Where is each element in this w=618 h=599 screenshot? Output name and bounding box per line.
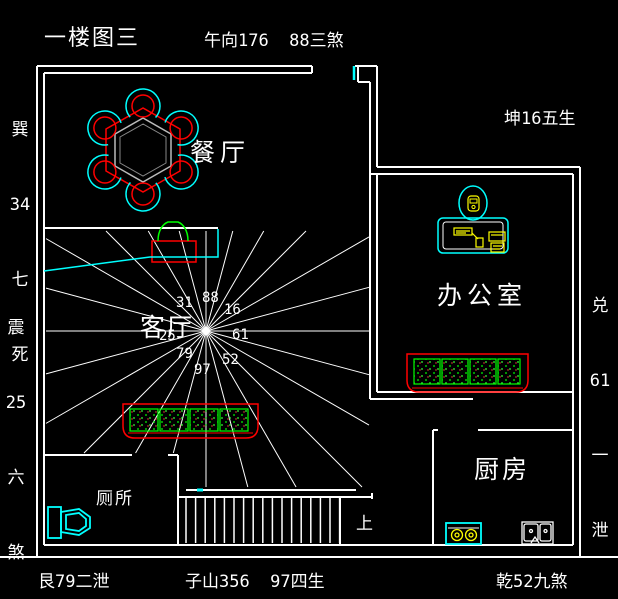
- star-number: 79: [176, 346, 193, 362]
- star-number: 52: [222, 352, 239, 368]
- star-number: 61: [232, 327, 249, 343]
- stove: [446, 523, 481, 544]
- compass-leftmid-label: 震 25 六 煞: [1, 266, 31, 599]
- star-number: 16: [224, 302, 241, 318]
- compass-center: [203, 328, 209, 334]
- dining-chairs: [83, 82, 202, 218]
- room-label-office: 办公室: [437, 276, 527, 312]
- compass-bottomright-label: 乾52九煞: [496, 567, 567, 592]
- floor-plan: 一楼图三 午向176 88三煞 坤16五生 巽 34 七 死 震 25 六 煞 …: [0, 0, 618, 599]
- planter-living: [123, 404, 258, 438]
- room-label-kitchen: 厨房: [474, 450, 530, 486]
- room-label-dining: 餐厅: [190, 133, 250, 169]
- toilet-fixture: [48, 507, 90, 538]
- computer-equipment: [454, 228, 505, 252]
- compass-topright-label: 坤16五生: [504, 104, 575, 129]
- compass-bottomleft-label: 艮79二泄: [38, 567, 109, 592]
- office-desk: [438, 186, 508, 253]
- sink: [522, 522, 553, 544]
- stairs-up-label: 上: [356, 509, 373, 534]
- room-label-toilet: 厕所: [96, 484, 134, 509]
- stairs: [186, 497, 340, 543]
- star-number: 88: [202, 290, 219, 306]
- star-number: 31: [176, 295, 193, 311]
- ledge-line: [44, 229, 218, 271]
- compass-rightmid-label: 兑 61 一 泄: [585, 244, 615, 594]
- tv-cabinet: [44, 222, 218, 271]
- star-number: 25: [159, 328, 176, 344]
- page-title: 一楼图三: [44, 20, 140, 52]
- compass-bottomcenter-label: 子山356 97四生: [185, 567, 325, 592]
- dining-table: [106, 108, 180, 192]
- star-number: 97: [194, 362, 211, 378]
- compass-ray-lines: [46, 231, 369, 487]
- compass-top-label: 午向176 88三煞: [204, 26, 344, 51]
- planter-office: [407, 354, 528, 392]
